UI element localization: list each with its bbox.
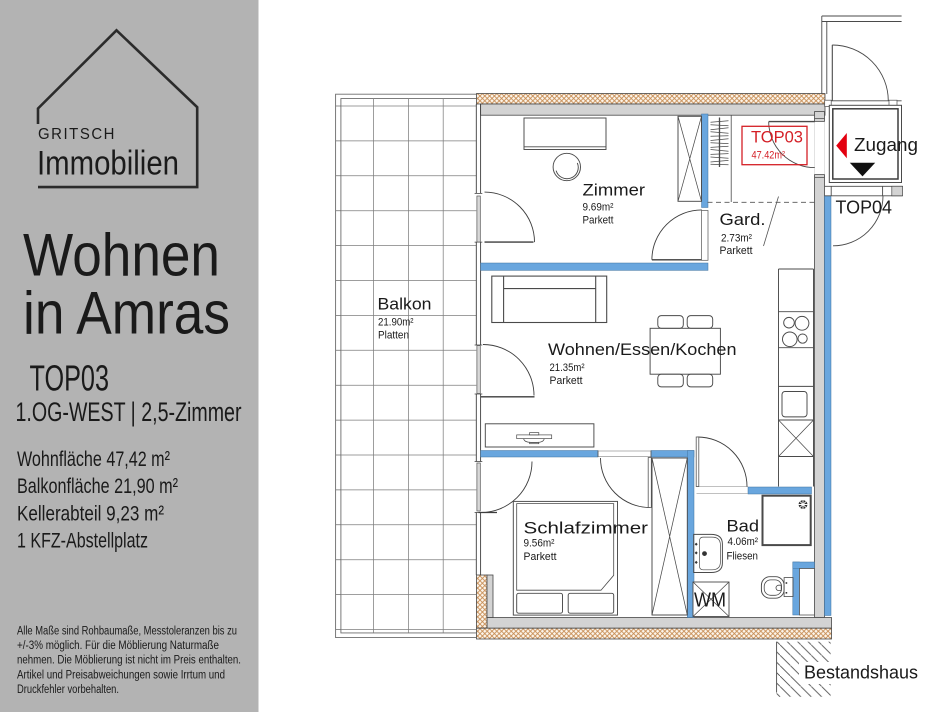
svg-text:47.42m²: 47.42m² [752, 150, 786, 162]
svg-text:Fliesen: Fliesen [727, 551, 759, 563]
svg-text:+/-3% möglich. Für die Möblier: +/-3% möglich. Für die Möblierung Naturm… [17, 640, 219, 652]
svg-text:GRITSCH: GRITSCH [38, 126, 116, 143]
svg-text:TOP04: TOP04 [836, 197, 893, 218]
svg-text:Balkon: Balkon [378, 296, 432, 314]
svg-text:1 KFZ-Abstellplatz: 1 KFZ-Abstellplatz [17, 530, 148, 553]
svg-text:Druckfehler vorbehalten.: Druckfehler vorbehalten. [17, 684, 119, 696]
svg-text:21.35m²: 21.35m² [550, 362, 585, 374]
svg-text:Bestandshaus: Bestandshaus [804, 663, 918, 683]
svg-text:Wohnen: Wohnen [23, 222, 220, 289]
svg-text:Gard.: Gard. [720, 211, 766, 229]
svg-text:Parkett: Parkett [583, 215, 614, 227]
svg-text:Immobilien: Immobilien [37, 145, 179, 183]
svg-text:1.OG-WEST | 2,5-Zimmer: 1.OG-WEST | 2,5-Zimmer [16, 397, 242, 427]
svg-text:4.06m²: 4.06m² [728, 536, 759, 548]
svg-text:Artikel und Preisabweichungen: Artikel und Preisabweichungen sowie Irrt… [17, 669, 225, 681]
svg-text:Parkett: Parkett [550, 375, 583, 387]
svg-text:WM: WM [694, 590, 726, 612]
svg-text:Zugang: Zugang [854, 134, 918, 155]
svg-text:Kellerabteil 9,23 m²: Kellerabteil 9,23 m² [17, 503, 164, 526]
svg-text:Alle Maße sind Rohbaumaße, Mes: Alle Maße sind Rohbaumaße, Messtoleranze… [17, 626, 237, 638]
svg-text:21.90m²: 21.90m² [378, 317, 414, 329]
svg-text:2.73m²: 2.73m² [721, 233, 752, 245]
svg-text:9.69m²: 9.69m² [583, 202, 614, 214]
svg-text:nehmen. Die Möblierung ist nic: nehmen. Die Möblierung ist nicht im Prei… [17, 655, 241, 667]
svg-text:TOP03: TOP03 [751, 129, 803, 147]
svg-text:Schlafzimmer: Schlafzimmer [524, 520, 649, 538]
svg-text:Balkonfläche 21,90 m²: Balkonfläche 21,90 m² [17, 475, 178, 498]
svg-text:Bad: Bad [727, 518, 760, 536]
svg-text:Wohnen/Essen/Kochen: Wohnen/Essen/Kochen [548, 341, 737, 359]
svg-text:Parkett: Parkett [720, 245, 753, 257]
svg-text:in Amras: in Amras [23, 280, 230, 347]
svg-text:Parkett: Parkett [524, 551, 557, 563]
svg-text:9.56m²: 9.56m² [524, 538, 555, 550]
svg-text:Platten: Platten [378, 330, 409, 342]
svg-text:Zimmer: Zimmer [583, 182, 646, 200]
svg-text:Wohnfläche 47,42 m²: Wohnfläche 47,42 m² [17, 448, 170, 471]
svg-text:TOP03: TOP03 [30, 358, 110, 399]
